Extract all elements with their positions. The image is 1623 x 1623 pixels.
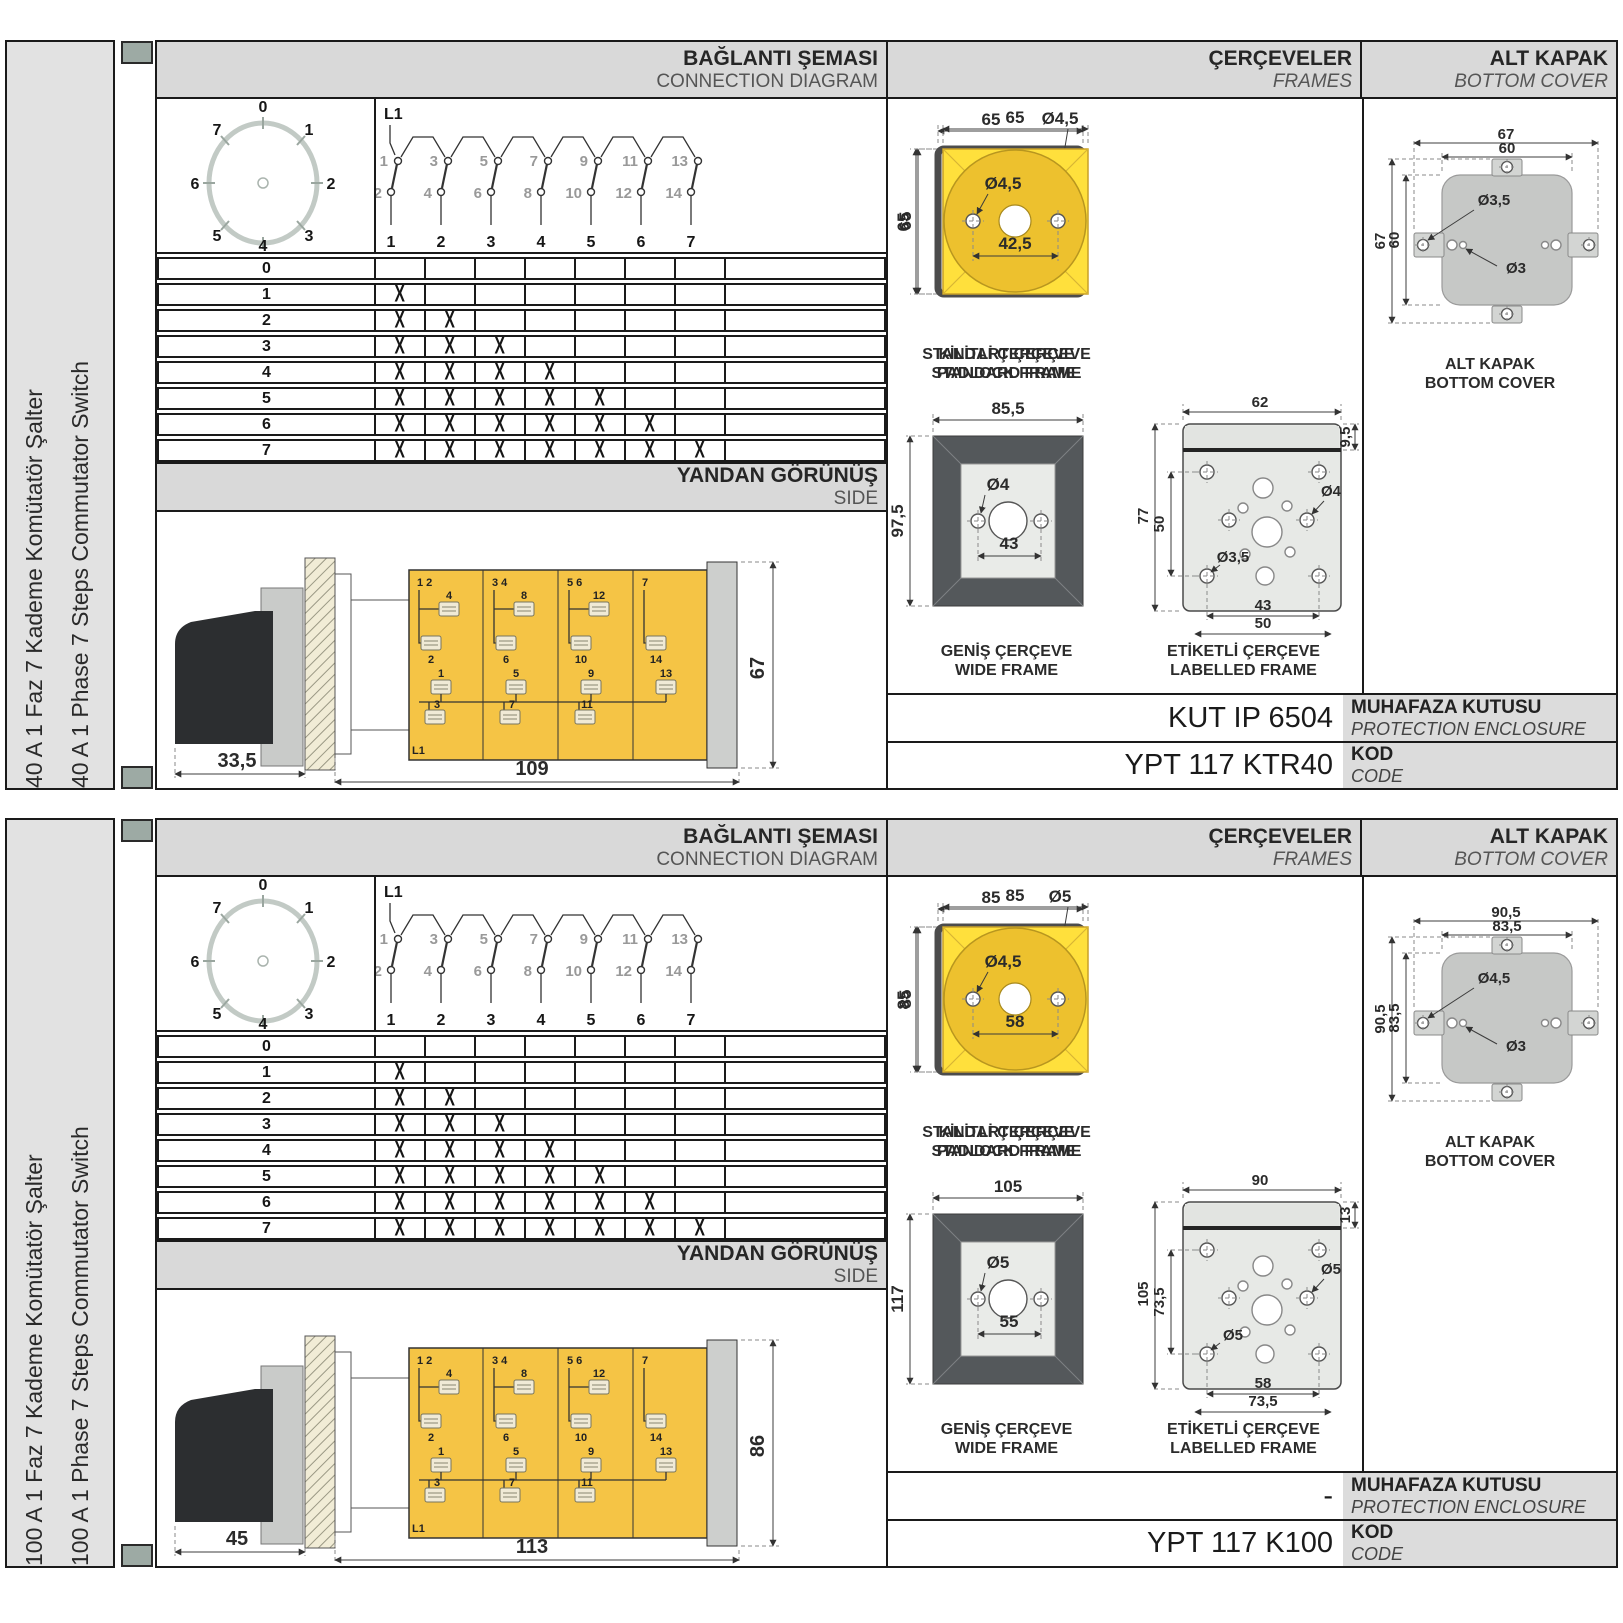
x-mark: X [495,337,505,356]
label-en: CODE [1351,1544,1608,1565]
step-label: 2 [159,1089,376,1108]
contact-label: 14 [665,963,682,980]
table-cell: X [376,389,426,408]
dim-label: 13 [1337,1207,1354,1224]
bottom-cover-header: ALT KAPAK BOTTOM COVER [1362,820,1616,877]
enclosure-code: - [888,1473,1343,1519]
table-cell: X [426,1115,476,1134]
terminal-label: 1 [438,668,444,680]
step-label: 1 [159,1063,376,1082]
column-number: 3 [487,1012,496,1029]
table-cell [576,311,626,330]
x-mark: X [495,363,505,382]
frame-caption-tr: ETİKETLİ ÇERÇEVE [1125,642,1362,661]
feed-label: L1 [412,745,425,757]
dial-position: 6 [191,176,200,193]
switch-pole: 9 10 5 [565,153,601,251]
table-cell [576,1063,626,1082]
contact-label: 1 [380,931,388,948]
frame-caption-en: PADLOCK FRAME [888,364,1125,383]
terminal-label: 9 [588,668,594,680]
switch-pole: 5 6 3 [474,153,502,251]
wide-frame-drawing: 85,5 97,5 Ø4 43 [888,396,1125,646]
table-cell [476,259,526,278]
frame-caption-tr: KİLİTLİ ÇERÇEVE [888,1123,1125,1142]
bottom-cover-drawing: Ø3,5 Ø3 67 60 67 60 [1364,127,1618,359]
terminal-label: 14 [650,1432,663,1444]
table-cell: X [426,389,476,408]
dial-position: 4 [259,238,268,252]
x-mark: X [695,1219,705,1238]
table-row: 5XXXXX [157,1165,886,1188]
step-label: 3 [159,1115,376,1134]
dim-label: 77 [1135,508,1152,525]
table-cell [576,1089,626,1108]
header-title-tr: YANDAN GÖRÜNÜŞ [677,1242,878,1266]
x-mark: X [695,441,705,460]
enclosure-code: KUT IP 6504 [888,695,1343,741]
rotary-dial-diagram: 0 1 2 3 4 5 6 7 [157,99,374,252]
column-number: 4 [537,234,546,251]
dim-label: 117 [888,1285,907,1312]
product-name-tr: 100 A 1 Faz 7 Kademe Komütatör Şalter [21,820,48,1566]
bottom-cover-header: ALT KAPAK BOTTOM COVER [1362,42,1616,99]
table-row: 2XX [157,1087,886,1110]
table-cell: X [376,363,426,382]
dim-label: 60 [1499,140,1516,157]
enclosure-label: MUHAFAZA KUTUSU PROTECTION ENCLOSURE [1343,1473,1616,1519]
table-cell [476,1089,526,1108]
table-cell [426,1063,476,1082]
header-title-en: FRAMES [1273,849,1352,871]
terminal-label: 3 4 [492,577,508,589]
x-mark: X [395,363,405,382]
frame-caption-tr: GENİŞ ÇERÇEVE [888,1420,1125,1439]
product-code: YPT 117 K100 [888,1521,1343,1566]
terminal-label: 3 [434,699,440,711]
wide-frame: 85,5 97,5 Ø4 43 GENİŞ ÇERÇEVEWIDE FRAME [888,396,1125,693]
terminal-label: 1 2 [417,1355,432,1367]
x-mark: X [495,1193,505,1212]
dim-label: 42,5 [998,234,1031,253]
dial-position: 2 [327,176,336,193]
x-mark: X [445,1193,455,1212]
table-cell [626,337,676,356]
contact-label: 4 [424,185,433,202]
switch-side-view: 1 2 3 4 5 6 7 4 8 12 2 6 10 14 [157,1290,886,1566]
table-cell [576,1141,626,1160]
dim-label: 50 [1255,615,1272,632]
cover-caption-en: BOTTOM COVER [1364,1152,1616,1171]
x-mark: X [395,1167,405,1186]
x-mark: X [595,415,605,434]
table-cell: X [376,1063,426,1082]
contact-label: 14 [665,185,682,202]
table-cell [526,1115,576,1134]
table-cell [676,1141,726,1160]
table-filler [726,337,884,356]
table-cell [676,337,726,356]
table-cell [676,311,726,330]
table-cell: X [376,285,426,304]
x-mark: X [395,389,405,408]
table-cell [676,1089,726,1108]
frame-caption-en: LABELLED FRAME [1125,661,1362,680]
table-cell: X [526,1193,576,1212]
table-cell [626,1037,676,1056]
x-mark: X [545,415,555,434]
label-en: PROTECTION ENCLOSURE [1351,719,1608,740]
contact-label: 2 [376,963,382,980]
labelled-frame-drawing: 90 13 105 73,5 Ø5 Ø5 58 [1125,1174,1362,1424]
x-mark: X [395,285,405,304]
table-cell [626,1063,676,1082]
x-mark: X [445,311,455,330]
dim-label: 83,5 [1492,918,1521,935]
dim-label: 58 [1006,1012,1025,1031]
switch-pole: 13 14 7 [665,153,701,251]
panel-wall [305,558,335,770]
table-cell: X [426,311,476,330]
x-mark: X [395,1193,405,1212]
table-cell: X [576,441,626,460]
contact-label: 10 [565,185,582,202]
label-tr: MUHAFAZA KUTUSU [1351,1475,1608,1497]
dial-position: 3 [305,1006,314,1023]
x-mark: X [395,311,405,330]
contact-label: 10 [565,963,582,980]
frame-caption-tr: KİLİTLİ ÇERÇEVE [888,345,1125,364]
product-section: 40 A 1 Faz 7 Kademe Komütatör Şalter 40 … [5,40,1618,790]
x-mark: X [395,1141,405,1160]
table-row: 2XX [157,309,886,332]
table-row: 7XXXXXXX [157,1217,886,1240]
table-cell: X [526,441,576,460]
catalog-page: 40 A 1 Faz 7 Kademe Komütatör Şalter 40 … [0,0,1623,1623]
terminal-label: 2 [428,654,434,666]
table-cell [426,1037,476,1056]
contact-label: 12 [615,185,632,202]
table-row: 3XXX [157,1113,886,1136]
switch-pole: 1 2 1 [376,153,402,251]
switch-pole: 11 12 6 [615,153,651,251]
switch-pole: 7 8 4 [524,931,552,1029]
table-row: 0 [157,1035,886,1058]
table-filler [726,259,884,278]
step-label: 5 [159,389,376,408]
table-cell [576,1115,626,1134]
table-row: 1X [157,1061,886,1084]
table-cell: X [526,389,576,408]
table-cell: X [426,415,476,434]
terminal-label: 10 [575,654,587,666]
table-cell [626,363,676,382]
terminal-label: 6 [503,654,509,666]
x-mark: X [495,389,505,408]
table-filler [726,1141,884,1160]
padlock-frame-drawing: 65 65 Ø4,5 42,5 [888,99,1125,349]
x-mark: X [495,415,505,434]
x-mark: X [445,415,455,434]
switching-table: 0 1X 2XX 3XXX 4XXXX 5XXXXX 6XXXXXX 7XXXX… [157,257,886,462]
table-cell [576,337,626,356]
corner-marker [121,1544,153,1567]
dial-position: 1 [305,122,314,139]
switch-pole: 9 10 5 [565,931,601,1029]
contact-label: 7 [530,153,538,170]
terminal-label: 7 [509,699,515,711]
table-cell: X [376,415,426,434]
dial-position: 7 [213,122,222,139]
step-label: 0 [159,1037,376,1056]
table-cell: X [676,441,726,460]
table-cell [626,285,676,304]
x-mark: X [495,441,505,460]
terminal-label: 5 6 [567,577,582,589]
dim-label: 85,5 [991,399,1024,418]
x-mark: X [545,1193,555,1212]
bottom-cover-column: Ø4,5 Ø3 90,5 83,5 90,5 83,5 ALT KAPAKBOT… [1362,877,1616,1471]
table-cell: X [426,1089,476,1108]
dim-label: 43 [1255,597,1272,614]
table-filler [726,389,884,408]
bottom-cover-column: Ø3,5 Ø3 67 60 67 60 ALT KAPAKBOTTOM COVE… [1362,99,1616,693]
table-cell [676,1193,726,1212]
column-number: 4 [537,1012,546,1029]
table-filler [726,363,884,382]
dim-label: 62 [1252,396,1269,411]
x-mark: X [645,1219,655,1238]
frame-caption-tr: GENİŞ ÇERÇEVE [888,642,1125,661]
x-mark: X [645,1193,655,1212]
terminal-label: 2 [428,1432,434,1444]
padlock-frame: 85 85 Ø4,5 58 KİLİTLİ ÇERÇEVEPADLOCK FRA… [888,877,1125,1174]
dim-label: 109 [515,758,548,780]
dim-label: 90 [1252,1174,1269,1189]
table-filler [726,441,884,460]
frames-header: ÇERÇEVELER FRAMES [888,820,1362,877]
hole-label: Ø5 [1223,1327,1243,1344]
table-cell: X [526,1141,576,1160]
table-filler [726,285,884,304]
step-label: 1 [159,285,376,304]
dim-label: 67 [747,657,769,679]
table-row: 3XXX [157,335,886,358]
table-cell [626,389,676,408]
table-cell [526,1089,576,1108]
frame-caption-en: PADLOCK FRAME [888,1142,1125,1161]
table-filler [726,1063,884,1082]
table-cell [626,1141,676,1160]
terminal-label: 13 [660,1446,672,1458]
dial-position: 5 [213,1006,222,1023]
bottom-cover-drawing: Ø4,5 Ø3 90,5 83,5 90,5 83,5 [1364,905,1618,1137]
dim-label: 86 [747,1435,769,1457]
x-mark: X [545,389,555,408]
dim-label: 58 [1255,1375,1272,1392]
x-mark: X [495,1219,505,1238]
cover-caption-tr: ALT KAPAK [1364,1133,1616,1152]
table-row: 7XXXXXXX [157,439,886,462]
table-cell: X [376,1141,426,1160]
dim-label: 73,5 [1151,1287,1168,1316]
header-title-en: CONNECTION DIAGRAM [656,849,878,871]
contact-label: 1 [380,153,388,170]
table-cell: X [476,1115,526,1134]
table-cell: X [576,389,626,408]
switch-pole: 7 8 4 [524,153,552,251]
code-label: KOD CODE [1343,1521,1616,1566]
table-cell: X [576,415,626,434]
switch-pole: 1 2 1 [376,931,402,1029]
contact-label: 2 [376,185,382,202]
frames-header: ÇERÇEVELER FRAMES [888,42,1362,99]
table-row: 4XXXX [157,361,886,384]
dim-label: 85 [896,990,915,1009]
terminal-label: 3 [434,1477,440,1489]
switch-pole: 13 14 7 [665,931,701,1029]
step-label: 2 [159,311,376,330]
switch-pole: 3 4 2 [424,931,452,1029]
table-cell [526,285,576,304]
contact-label: 13 [671,931,688,948]
table-cell [676,259,726,278]
table-cell [676,363,726,382]
table-cell: X [426,441,476,460]
table-row: 1X [157,283,886,306]
table-cell: X [426,1141,476,1160]
header-title-tr: ÇERÇEVELER [1208,47,1352,71]
table-cell [526,1063,576,1082]
table-filler [726,1037,884,1056]
table-cell [676,1167,726,1186]
table-cell: X [426,1167,476,1186]
table-cell: X [426,1219,476,1238]
x-mark: X [595,389,605,408]
x-mark: X [395,441,405,460]
contact-label: 8 [524,963,532,980]
frames-column: 65 Ø4,5 65 50 STANDART ÇERÇEVESTANDARD F… [888,99,1362,693]
table-row: 6XXXXXX [157,1191,886,1214]
product-sidebar: 40 A 1 Faz 7 Kademe Komütatör Şalter 40 … [5,40,115,790]
dial-position: 3 [305,228,314,245]
hole-label: Ø5 [987,1253,1010,1272]
table-cell [426,259,476,278]
table-cell: X [476,363,526,382]
table-cell: X [526,1167,576,1186]
product-name-en: 100 A 1 Phase 7 Steps Commutator Switch [67,820,94,1566]
feed-label: L1 [384,106,403,123]
terminal-label: 7 [642,1355,648,1367]
x-mark: X [445,1141,455,1160]
column-number: 3 [487,234,496,251]
table-cell [676,389,726,408]
step-label: 5 [159,1167,376,1186]
table-row: 6XXXXXX [157,413,886,436]
switch-handle [175,1389,273,1522]
x-mark: X [395,415,405,434]
table-cell [626,311,676,330]
x-mark: X [445,1219,455,1238]
contact-label: 7 [530,931,538,948]
switch-pole: 3 4 2 [424,153,452,251]
dim-label: 83,5 [1386,1003,1403,1032]
table-cell [526,259,576,278]
table-cell: X [476,389,526,408]
table-cell: X [576,1167,626,1186]
column-number: 2 [437,234,446,251]
column-number: 1 [387,1012,396,1029]
feed-label: L1 [384,884,403,901]
switch-pole: 5 6 3 [474,931,502,1029]
table-cell: X [526,363,576,382]
dial-position: 7 [213,900,222,917]
side-view-drawing: 1 2 3 4 5 6 7 4 8 12 2 6 10 14 [157,1290,886,1566]
dim-label: 9,5 [1337,427,1354,448]
table-cell [626,1089,676,1108]
contact-label: 3 [430,931,438,948]
column-number: 7 [687,1012,696,1029]
table-cell: X [376,1089,426,1108]
dim-label: 105 [994,1177,1022,1196]
dim-label: 33,5 [218,750,257,772]
labelled-frame: 90 13 105 73,5 Ø5 Ø5 58 [1125,1174,1362,1471]
table-cell [626,259,676,278]
terminal-label: 1 2 [417,577,432,589]
cover-caption-en: BOTTOM COVER [1364,374,1616,393]
column-number: 1 [387,234,396,251]
dial-position: 4 [259,1016,268,1030]
terminal-label: 4 [446,590,453,602]
step-label: 4 [159,363,376,382]
table-cell: X [476,441,526,460]
header-title-en: BOTTOM COVER [1454,71,1608,93]
x-mark: X [495,1115,505,1134]
step-label: 3 [159,337,376,356]
header-title-tr: ALT KAPAK [1490,47,1608,71]
wide-frame: 105 117 Ø5 55 GENİŞ ÇERÇEVEWIDE FRAME [888,1174,1125,1471]
hole-label: Ø3,5 [1478,192,1511,209]
contact-label: 3 [430,153,438,170]
table-filler [726,1193,884,1212]
contact-label: 5 [480,153,488,170]
table-filler [726,1219,884,1238]
corner-marker [121,819,153,842]
hole-label: Ø4,5 [985,952,1022,971]
corner-marker [121,766,153,789]
hole-label: Ø3 [1506,260,1526,277]
rotary-dial-diagram: 0 1 2 3 4 5 6 7 [157,877,374,1030]
step-label: 6 [159,1193,376,1212]
table-cell: X [426,1193,476,1212]
x-mark: X [595,441,605,460]
x-mark: X [445,389,455,408]
table-cell: X [476,1167,526,1186]
terminal-label: 4 [446,1368,453,1380]
table-cell: X [676,1219,726,1238]
connection-column: 0 1 2 3 4 5 6 7 L1 [157,877,888,1566]
label-tr: MUHAFAZA KUTUSU [1351,697,1608,719]
dial-cell: 0 1 2 3 4 5 6 7 [157,877,376,1032]
enclosure-label: MUHAFAZA KUTUSU PROTECTION ENCLOSURE [1343,695,1616,741]
table-cell [476,1037,526,1056]
hole-label: Ø4 [1321,483,1342,500]
step-label: 4 [159,1141,376,1160]
connection-column: 0 1 2 3 4 5 6 7 L1 [157,99,888,788]
table-cell [526,337,576,356]
terminal-label: 11 [581,1477,593,1489]
dial-cell: 0 1 2 3 4 5 6 7 [157,99,376,254]
